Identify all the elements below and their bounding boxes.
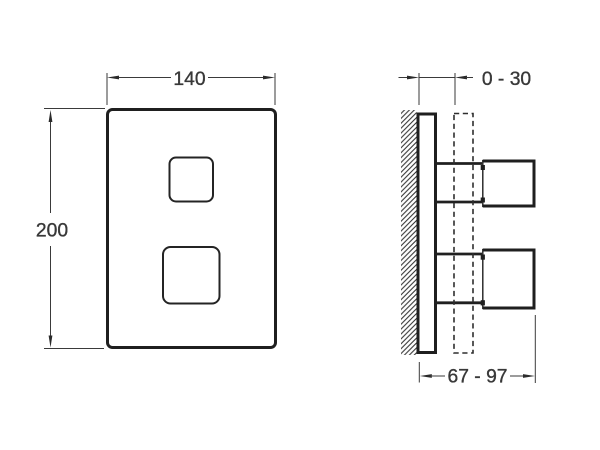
svg-text:0 - 30: 0 - 30 (482, 69, 531, 90)
svg-text:67 - 97: 67 - 97 (447, 367, 507, 388)
svg-text:140: 140 (173, 69, 205, 90)
svg-text:200: 200 (36, 221, 68, 242)
